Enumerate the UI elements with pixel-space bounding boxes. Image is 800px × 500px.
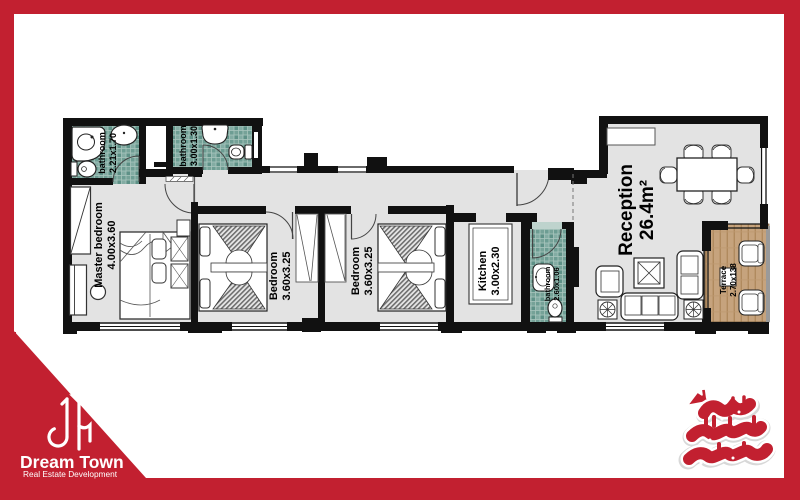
svg-text:bathroom: bathroom [543,266,552,301]
svg-text:bathroom: bathroom [178,125,188,167]
svg-text:3.60x3.25: 3.60x3.25 [281,252,293,301]
svg-text:bathroom: bathroom [97,132,107,174]
svg-text:Real Estate Development: Real Estate Development [23,469,118,479]
svg-text:3.00x1.30: 3.00x1.30 [189,126,199,166]
svg-text:2.60x1.06: 2.60x1.06 [552,267,561,300]
svg-text:26.4m²: 26.4m² [637,180,658,240]
svg-text:3.00x2.30: 3.00x2.30 [490,247,502,296]
svg-text:3.60x3.25: 3.60x3.25 [363,247,375,296]
svg-text:Bedroom: Bedroom [268,252,280,301]
svg-text:4.00x3.60: 4.00x3.60 [106,221,118,270]
svg-text:2.21x1.70: 2.21x1.70 [108,133,118,173]
svg-text:2.70x138: 2.70x138 [729,263,738,297]
svg-text:Terrace: Terrace [719,265,728,294]
svg-text:Reception: Reception [616,164,637,256]
svg-text:Bedroom: Bedroom [350,247,362,296]
svg-text:Kitchen: Kitchen [477,251,489,292]
svg-text:Master bedroom: Master bedroom [93,202,105,288]
